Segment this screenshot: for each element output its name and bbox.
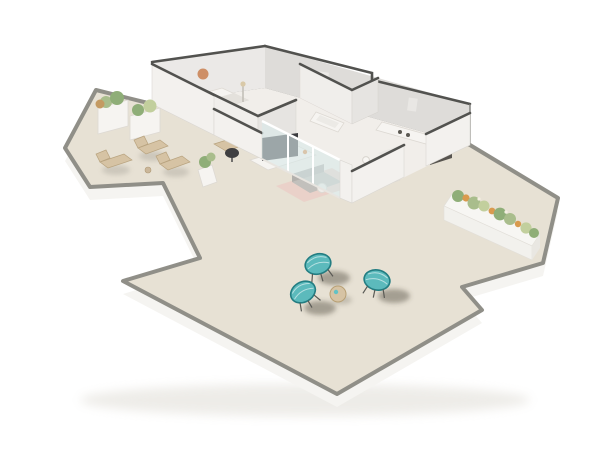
cooktop-burner-1 xyxy=(398,130,402,134)
wall-window-mark-2 xyxy=(407,98,418,112)
flower-foliage xyxy=(452,190,464,202)
round-wall-art xyxy=(198,69,209,80)
shrub xyxy=(110,91,124,105)
front-pillar xyxy=(340,160,352,203)
office-chair xyxy=(225,148,239,158)
floor-lamp-head xyxy=(240,81,245,86)
plant-leaves xyxy=(207,153,216,162)
flower-orange xyxy=(515,221,521,227)
flower-foliage xyxy=(479,201,490,212)
table-top xyxy=(330,286,346,302)
table-item-teal xyxy=(334,290,338,294)
isometric-floorplan-svg xyxy=(0,0,603,467)
shrub xyxy=(132,104,144,116)
side-table-small xyxy=(145,167,151,173)
flower-foliage xyxy=(504,213,516,225)
floorplan-render-canvas xyxy=(0,0,603,467)
shrub xyxy=(144,100,157,113)
flower-white xyxy=(477,197,480,200)
flower-foliage xyxy=(529,228,539,238)
cooktop-burner-2 xyxy=(406,133,410,137)
dry-shrub xyxy=(96,100,105,109)
flower-white xyxy=(504,210,507,213)
